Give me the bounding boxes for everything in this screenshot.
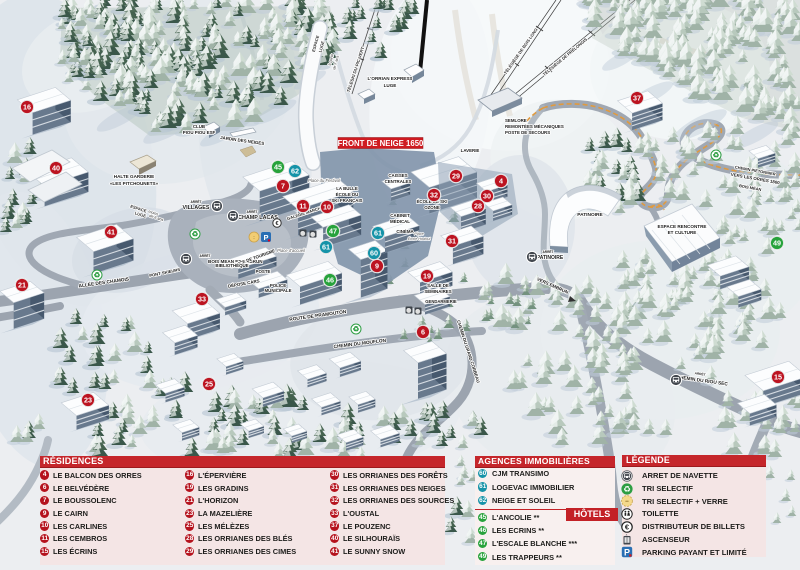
svg-text:11: 11 [299,201,307,210]
svg-text:60: 60 [370,248,378,257]
svg-text:♻: ♻ [713,151,720,160]
svg-text:CAISSES: CAISSES [388,173,407,178]
svg-text:LAVERIE: LAVERIE [461,148,480,153]
svg-text:L'ORRIAN EXPRESS: L'ORRIAN EXPRESS [368,76,413,81]
svg-text:33: 33 [198,294,206,303]
svg-text:⚪: ⚪ [300,230,306,236]
svg-text:LA BULLE: LA BULLE [336,186,358,191]
svg-text:61: 61 [374,228,382,237]
svg-text:⚪: ⚪ [415,308,421,314]
svg-text:47: 47 [329,226,337,235]
svg-text:6: 6 [421,327,425,336]
svg-text:♻: ♻ [192,230,199,239]
svg-text:10: 10 [323,202,331,211]
svg-text:♻: ♻ [94,271,101,280]
svg-text:ET CULTURE: ET CULTURE [668,230,697,235]
svg-text:HALTE GARDERIE: HALTE GARDERIE [114,174,155,179]
svg-text:23: 23 [84,395,92,404]
svg-text:ARRÊT: ARRÊT [200,253,211,258]
svg-text:16: 16 [23,102,31,111]
svg-text:ARRÊT: ARRÊT [191,199,202,204]
svg-text:SKI FRANÇAIS: SKI FRANÇAIS [331,198,362,203]
svg-text:CABINET: CABINET [390,213,410,218]
svg-text:29: 29 [452,171,460,180]
svg-text:Place: Place [414,232,424,236]
svg-text:PATINOIRE: PATINOIRE [577,212,603,218]
svg-text:45: 45 [274,162,282,171]
svg-text:SALLE DE: SALLE DE [427,283,449,288]
svg-text:POSTE DE SECOURS: POSTE DE SECOURS [505,130,550,135]
svg-text:PIOU PIOU ESF: PIOU PIOU ESF [183,130,216,135]
svg-text:62: 62 [291,166,299,175]
svg-text:ESPACE RENCONTRE: ESPACE RENCONTRE [658,224,707,229]
svg-text:REMONTÉES MÉCANIQUES: REMONTÉES MÉCANIQUES [505,124,564,129]
svg-text:PATINOIRE: PATINOIRE [537,255,564,261]
svg-text:«LES PITCHOUNETS»: «LES PITCHOUNETS» [110,181,159,186]
svg-text:32: 32 [430,190,438,199]
svg-text:25: 25 [205,379,213,388]
svg-text:MÉDICAL: MÉDICAL [390,219,410,224]
svg-text:GENDARMERIE: GENDARMERIE [425,299,457,304]
svg-text:46: 46 [326,275,334,284]
svg-text:4: 4 [499,176,503,185]
svg-text:37: 37 [633,93,641,102]
svg-text:15: 15 [774,372,782,381]
svg-text:POSTE: POSTE [256,269,271,274]
svg-text:Émile Hodoul: Émile Hodoul [408,236,431,241]
svg-text:CINÉMA: CINÉMA [396,229,414,234]
svg-text:OZONE: OZONE [424,205,440,210]
svg-text:LUGE: LUGE [384,83,397,88]
svg-text:VILLAGES: VILLAGES [183,205,210,211]
svg-text:31: 31 [448,236,456,245]
svg-text:9: 9 [375,261,379,270]
svg-text:::: :: [253,235,256,240]
svg-text:CLUB: CLUB [193,124,205,129]
svg-text:61: 61 [322,242,330,251]
svg-text:FRONT DE NEIGE 1650: FRONT DE NEIGE 1650 [338,139,424,148]
svg-text:€: € [275,221,278,227]
svg-text:CENTRALES: CENTRALES [385,179,412,184]
svg-text:Place du Festival: Place du Festival [308,178,341,183]
svg-text:CHAMP LACAS: CHAMP LACAS [238,215,278,221]
svg-text:30: 30 [483,191,491,200]
svg-text:BIBLIOTHÈQUE: BIBLIOTHÈQUE [215,263,248,268]
svg-text:28: 28 [474,201,482,210]
svg-text:ARRÊT: ARRÊT [543,249,554,254]
svg-text:41: 41 [107,227,115,236]
svg-text:40: 40 [52,163,60,172]
svg-text:ARRÊT: ARRÊT [247,209,258,214]
svg-text:SEMLORE: SEMLORE [505,118,527,123]
svg-text:MUNICIPALE: MUNICIPALE [265,288,292,293]
svg-text:⚪: ⚪ [310,231,316,237]
svg-text:♻: ♻ [353,325,360,334]
svg-text:SÉMINAIRES: SÉMINAIRES [424,289,451,294]
svg-text:P: P [263,233,268,242]
svg-text:21: 21 [18,280,26,289]
svg-text:19: 19 [423,271,431,280]
svg-text:ÉCOLE DU: ÉCOLE DU [336,192,359,197]
svg-text:7: 7 [281,181,285,190]
svg-text:Place d'accueil: Place d'accueil [277,248,306,253]
svg-text:⚪: ⚪ [406,307,412,313]
svg-text:49: 49 [773,238,781,247]
